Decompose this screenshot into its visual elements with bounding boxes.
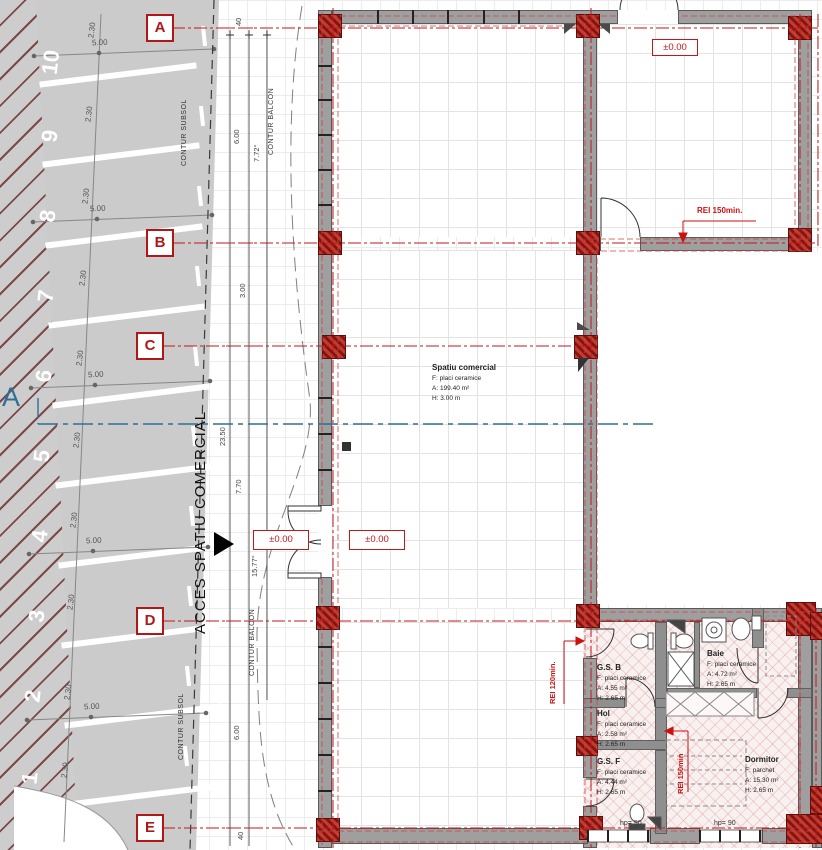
access-arrow-icon [214,532,234,556]
entrance-opening [618,10,678,24]
parking-number: 6 [32,369,55,384]
parking-number: 2 [21,689,44,704]
grid-bubble-e: E [136,814,164,842]
dim-label: 3.00 [238,272,247,298]
dim-label: 6.00 [232,714,241,740]
parking-length-dim: 5.00 [92,38,108,48]
parking-length-dim: 5.00 [86,536,102,546]
dim-label: 7.72° [252,132,261,162]
linework-layer [0,0,822,850]
fire-rating-label: REI 150min [676,734,685,794]
room-label-gsb: G.S. B F: placi ceramice A: 4.55 m² H: 2… [597,662,646,703]
wall-fire-contours [320,12,812,845]
parking-length-dim: 5.00 [90,204,106,214]
dim-label: 40 [234,10,243,26]
contur-balcon-line [257,6,310,848]
parapet-label: hp= 90 [620,820,642,827]
side-door-opening [318,506,332,577]
grid-bubble-a: A [146,14,174,42]
parking-length-dim: 5.00 [84,702,100,712]
contur-balcon-label: CONTUR BALCON [268,95,275,155]
section-line-a [38,398,655,424]
window-band [588,830,650,842]
section-marker-a: A [2,382,20,413]
parking-number: 8 [36,209,59,224]
floor-plan-canvas: 10 9 8 7 6 5 4 3 2 1 2.30 2.30 2.30 2.30… [0,0,822,850]
dim-label: 6.00 [232,118,241,144]
parking-length-dim: 5.00 [88,370,104,380]
level-marker: ±0.00 [253,530,309,550]
parking-number: 7 [34,289,57,304]
parking-number: 4 [28,529,51,544]
grid-bubble-c: C [136,332,164,360]
parking-number: 10 [39,49,64,76]
grid-bubble-b: B [146,229,174,257]
grid-bubble-d: D [136,607,164,635]
level-marker: ±0.00 [652,39,698,56]
room-label-spatiu-comercial: Spatiu comercial F: placi ceramice A: 19… [432,362,496,403]
contur-subsol-label: CONTUR SUBSOL [178,688,185,760]
parapet-label: hp= 90 [714,820,736,827]
window-band [700,830,762,842]
road-curve [14,786,128,850]
dim-label: 7.70 [234,468,243,494]
parking-number: 3 [25,609,48,624]
fire-rating-label: REI 120min. [548,640,557,704]
room-label-baie: Baie F: placi ceramice A: 4.72 m² H: 2.6… [707,648,756,689]
fire-rating-label: REI 150min. [697,206,742,215]
access-label: ACCES SPATIU COMERCIAL [192,452,209,634]
parking-number: 5 [30,449,53,464]
parking-number: 9 [38,129,61,144]
level-marker: ±0.00 [349,530,405,550]
window-mullions [318,10,760,842]
contur-subsol-label: CONTUR SUBSOL [181,94,188,166]
dim-label: 40 [236,824,245,840]
contur-balcon-label: CONTUR BALCON [249,604,256,676]
room-label-hol: Hol F: placi ceramice A: 2.58 m² H: 2.65… [597,708,646,749]
dim-label: 23.50 [218,412,227,446]
room-label-dormitor: Dormitor F: parchet A: 15.30 m² H: 2.65 … [745,754,779,795]
room-label-gsf: G.S. F F: placi ceramice A: 4.44 m² H: 2… [597,756,646,797]
parking-number: 1 [18,771,41,786]
